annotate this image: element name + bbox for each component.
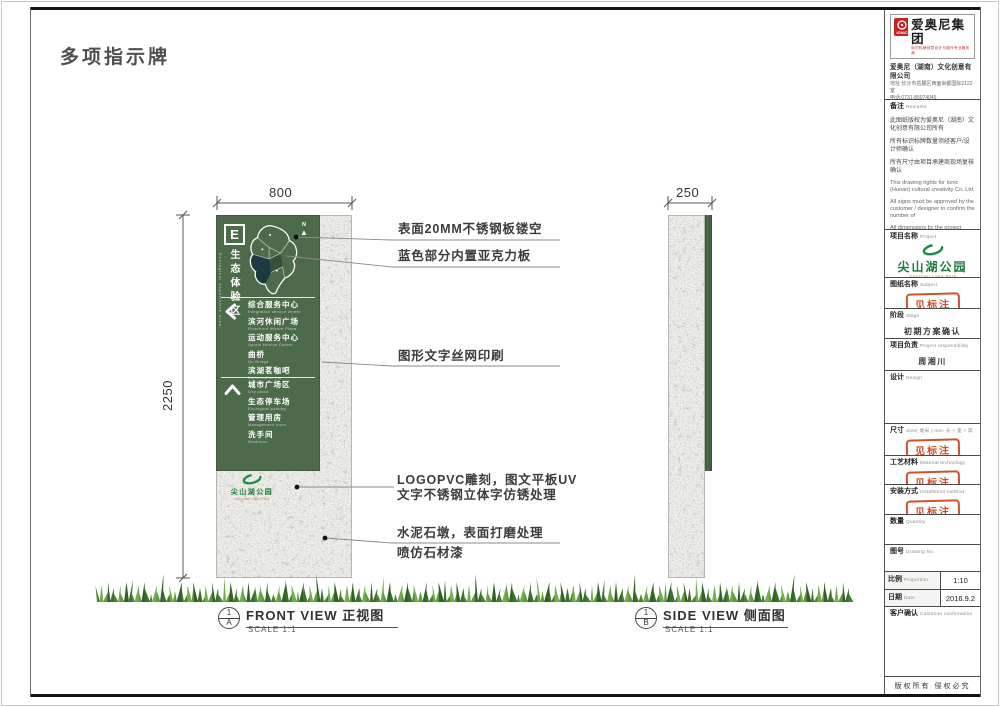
frame-left-line (30, 7, 31, 697)
side-view-ref-bubble: 1 B (635, 607, 657, 629)
design-section: 设计Design (885, 371, 980, 424)
dim-front-height: 2250 (160, 380, 175, 411)
drawing-no-section: 图号Drawing No (885, 545, 980, 572)
sign-green-panel: E 生态体验区 Ecological experience area N ▲ 综 (216, 215, 320, 471)
annotation-acrylic: 蓝色部分内置亚克力板 (398, 249, 531, 263)
list-item: 生态停车场 Ecological parking (248, 398, 291, 411)
proportion-section: 比例Proportion 1:10 (885, 572, 980, 590)
dim-side-width: 250 (676, 185, 699, 200)
annotation-steel: 表面20MM不锈钢板镂空 (398, 222, 542, 236)
list-item: 城市广场区 City plaza (248, 381, 291, 394)
remark-zh-2: 所有标识标牌数量须经客户/设计师确认 (890, 138, 975, 154)
install-section: 安装方式Installation method 见标注 (885, 485, 980, 515)
svg-text:IONIC: IONIC (896, 30, 907, 35)
side-view-scale: SCALE 1:1 (665, 625, 714, 634)
list-item: 洗手间 Restroom (248, 431, 291, 444)
north-arrow-icon: N ▲ (300, 223, 308, 237)
project-name: 尖山湖公园 (890, 261, 975, 274)
responsibility-value: 周湘川 (890, 356, 975, 367)
annotation-logo-line2: 文字不锈钢立体字仿锈处理 (397, 488, 557, 502)
chevron-left-icon (224, 303, 237, 320)
park-leaf-icon (241, 473, 263, 485)
direction-list-up: 城市广场区 City plaza 生态停车场 Ecological parkin… (248, 381, 291, 447)
size-stamp: 见标注 (905, 438, 960, 456)
proportion-value: 1:10 (941, 572, 980, 589)
list-item: 滨河休闲广场 Riverfront leisure Plaza (248, 318, 301, 331)
customer-section: 客户确认Customer confirmation (885, 607, 980, 677)
title-block: IONIC 爱奥尼集团 标识标牌创意设计与制作专业服务商 爱奥尼（湖南）文化创意… (884, 10, 980, 694)
annotation-silkscreen: 图形文字丝网印刷 (398, 349, 504, 363)
company-group-name: 爱奥尼集团 (911, 18, 971, 46)
company-logo-box: IONIC 爱奥尼集团 标识标牌创意设计与制作专业服务商 (890, 14, 975, 59)
quantity-section: 数量Quantity (885, 515, 980, 545)
drawing-sheet: 多项指示牌 E 生态体验区 Ecological experience area (0, 0, 1000, 707)
remark-en-1: This drawing rights for Ionic (Hunan) cu… (890, 180, 975, 194)
park-logo: 尖山湖公园 Jianshan Lake Park (220, 473, 284, 501)
park-map-icon (244, 221, 300, 297)
frame-top-bar (30, 7, 981, 10)
front-view-scale: SCALE 1:1 (248, 625, 297, 634)
grass (95, 572, 855, 602)
zone-code-badge: E (224, 224, 245, 245)
size-section: 尺寸Size( 毫米 ) mm: 长 × 宽 × 高 见标注 (885, 424, 980, 456)
list-item: 曲桥 Qu Bridge (248, 351, 301, 364)
copyright-notice: 版权所有 侵权必究 (885, 677, 980, 694)
side-panel-edge (705, 215, 712, 471)
side-view-monument (668, 215, 712, 578)
ionic-logo-icon: IONIC (894, 18, 908, 36)
company-address: 地址:长沙市岳麓区西面尚都国际2122室 (890, 81, 975, 95)
remark-en-2: All signs must be approved by the custom… (890, 199, 975, 220)
dim-front-width: 800 (269, 185, 292, 200)
front-view-monument: E 生态体验区 Ecological experience area N ▲ 综 (216, 215, 352, 578)
company-tagline: 标识标牌创意设计与制作专业服务商 (911, 46, 971, 56)
direction-list-left: 综合服务中心 Integration service center 滨河休闲广场… (248, 301, 301, 384)
page-title: 多项指示牌 (60, 42, 170, 69)
material-stamp: 见标注 (905, 470, 960, 485)
annotation-logo-line1: LOGOPVC雕刻，图文平板UV (397, 473, 577, 487)
list-item: 综合服务中心 Integration service center (248, 301, 301, 314)
list-item: 运动服务中心 Sports service Center (248, 334, 301, 347)
stage-section: 阶段Stage 初期方案确认 (885, 309, 980, 339)
remark-zh-3: 所有尺寸由项目承建商现场复核确认 (890, 159, 975, 175)
front-view-ref-bubble: 1 A (218, 607, 240, 629)
responsibility-section: 项目负责Project responsibility 周湘川 (885, 339, 980, 371)
panel-divider (221, 377, 315, 378)
frame-right-line (980, 7, 981, 697)
subject-section: 图纸名称Subject 见标注 (885, 278, 980, 309)
park-logo-icon (920, 243, 946, 256)
granite-texture-side (668, 215, 705, 578)
list-item: 管理用房 Management room (248, 414, 291, 427)
annotation-base-line1: 水泥石墩，表面打磨处理 (397, 526, 543, 540)
list-item: 滨湖茗咖吧 Binhu coffee bar (248, 367, 301, 380)
remarks-section: 备注Remarks 此图纸版权为爱奥尼（湖南）文化创意有限公司所有 所有标识标牌… (885, 100, 980, 230)
frame-bottom-bar (30, 694, 981, 697)
zone-name-en-vertical: Ecological experience area (218, 253, 223, 327)
install-stamp: 见标注 (905, 499, 960, 515)
chevron-up-icon (224, 383, 241, 396)
annotation-base-line2: 喷仿石材漆 (397, 546, 464, 560)
company-full-name: 爱奥尼（湖南）文化创意有限公司 (890, 63, 975, 81)
panel-divider (221, 297, 315, 298)
project-section: 项目名称Project 尖山湖公园 Jianshan Lake Park (885, 230, 980, 278)
date-value: 2016.9.2 (941, 590, 980, 606)
material-section: 工艺材料Material technology 见标注 (885, 456, 980, 485)
stage-value: 初期方案确认 (890, 326, 975, 337)
date-section: 日期Date 2016.9.2 (885, 590, 980, 607)
remark-zh-1: 此图纸版权为爱奥尼（湖南）文化创意有限公司所有 (890, 117, 975, 133)
company-header: IONIC 爱奥尼集团 标识标牌创意设计与制作专业服务商 爱奥尼（湖南）文化创意… (885, 10, 980, 100)
subject-stamp: 见标注 (905, 292, 960, 309)
